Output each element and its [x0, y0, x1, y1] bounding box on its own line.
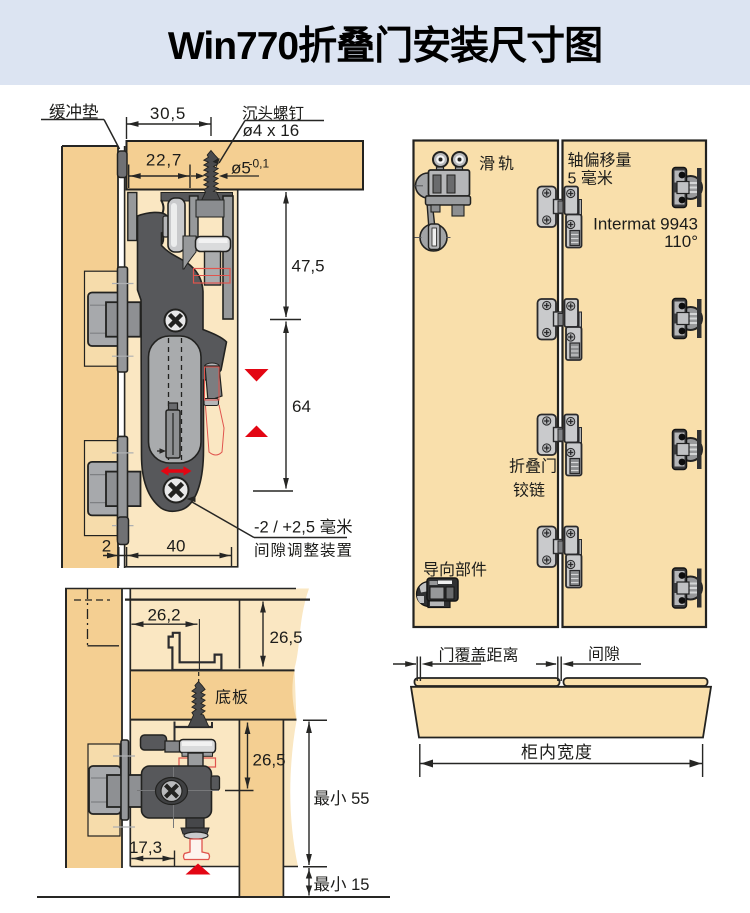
svg-text:最小 15: 最小 15: [314, 875, 370, 894]
svg-text:Intermat 9943: Intermat 9943: [593, 215, 698, 234]
svg-text:2: 2: [102, 537, 111, 556]
svg-text:间隙调整装置: 间隙调整装置: [254, 542, 353, 560]
svg-text:门覆盖距离: 门覆盖距离: [438, 647, 518, 665]
svg-text:40: 40: [167, 537, 186, 556]
svg-text:-0,1: -0,1: [249, 157, 270, 171]
svg-text:底板: 底板: [215, 689, 249, 707]
svg-text:铰链: 铰链: [513, 482, 545, 500]
svg-text:缓冲垫: 缓冲垫: [49, 103, 99, 122]
svg-text:最小 55: 最小 55: [314, 789, 370, 808]
svg-text:64: 64: [292, 397, 311, 416]
svg-text:26,5: 26,5: [270, 628, 303, 647]
svg-text:26,5: 26,5: [253, 751, 286, 770]
svg-text:30,5: 30,5: [150, 104, 186, 123]
svg-text:5 毫米: 5 毫米: [568, 169, 613, 188]
svg-text:折叠门: 折叠门: [509, 458, 557, 476]
svg-text:-2 / +2,5 毫米: -2 / +2,5 毫米: [254, 518, 353, 537]
svg-text:Win770折叠门安装尺寸图: Win770折叠门安装尺寸图: [168, 25, 602, 68]
svg-text:17,3: 17,3: [129, 838, 162, 857]
svg-text:ø4 x 16: ø4 x 16: [243, 121, 300, 140]
svg-text:47,5: 47,5: [292, 257, 325, 276]
svg-text:柜内宽度: 柜内宽度: [521, 743, 593, 762]
svg-text:滑轨: 滑轨: [479, 155, 517, 173]
svg-text:110°: 110°: [664, 232, 698, 251]
svg-text:导向部件: 导向部件: [423, 561, 487, 579]
svg-text:轴偏移量: 轴偏移量: [568, 152, 632, 170]
svg-text:26,2: 26,2: [147, 606, 180, 625]
svg-text:间隙: 间隙: [588, 646, 620, 664]
svg-text:22,7: 22,7: [146, 151, 182, 170]
